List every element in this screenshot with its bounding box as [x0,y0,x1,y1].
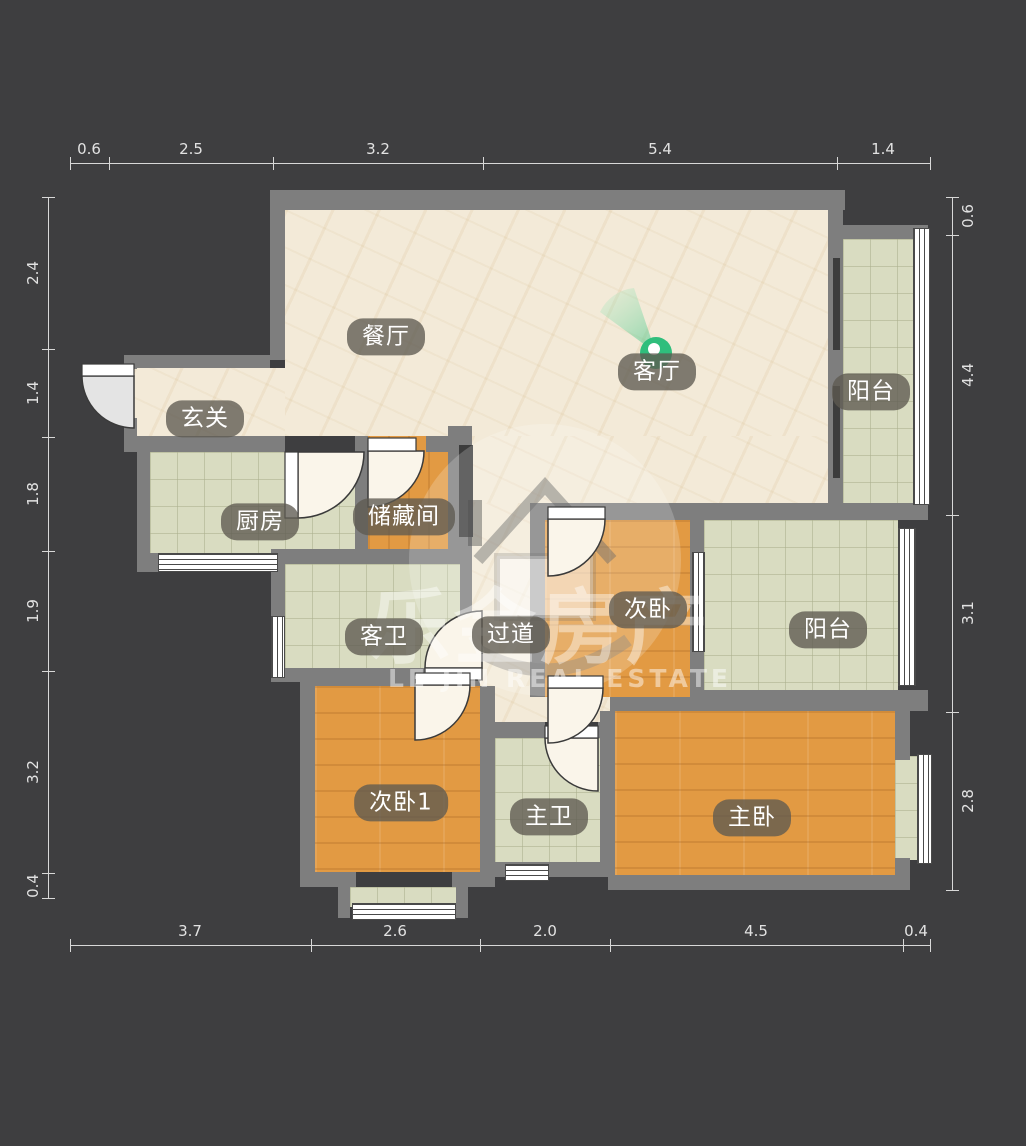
window-master-bay [917,754,932,864]
dimension-value-bottom: 2.6 [383,922,407,940]
dimension-value-left: 2.4 [24,261,42,285]
dimension-value-top: 2.5 [179,140,203,158]
floor-master-bay-window [895,756,917,860]
dimension-tick [946,235,959,236]
wall-kitchen-bottom-stub [137,553,158,572]
floor-plan-canvas: 乐金房产 LE JIN REAL ESTATE 餐厅 客厅 玄关 厨房 储藏间 … [0,0,1026,1146]
wall-entry-bottom [124,436,285,452]
dimension-tick [42,873,55,874]
dimension-tick [610,939,611,952]
wall-bedroom21-bottom-left [300,872,356,887]
room-label-bedroom2-1: 次卧1 [354,784,448,821]
wall-bedroom21-bottom-right [452,872,495,887]
dimension-value-right: 2.8 [959,789,977,813]
floor-bedroom2-1 [315,686,480,872]
dimension-value-top: 5.4 [648,140,672,158]
dimension-tick [837,157,838,170]
room-label-storage: 储藏间 [353,498,455,535]
dimension-value-right: 4.4 [959,363,977,387]
wall-kitchen-left [137,452,150,553]
floor-balcony-right [704,520,898,690]
dimension-line-top [70,163,930,164]
wall-top [271,190,845,210]
room-label-entryway: 玄关 [166,400,244,437]
dimension-tick [946,890,959,891]
floor-living-lower [472,436,828,503]
wall-entry-top [137,355,270,368]
wall-bedroom21-masterbath [480,686,495,876]
window-guest-bath [271,616,285,678]
dimension-value-top: 3.2 [366,140,390,158]
dimension-tick [946,515,959,516]
floor-master-bedroom [615,711,895,875]
window-master-bath [505,864,549,881]
window-balcony-top [913,228,930,505]
dimension-tick [311,939,312,952]
dimension-tick [42,671,55,672]
room-label-living: 客厅 [618,353,696,390]
dimension-tick [273,157,274,170]
wall-bay-side-right [456,887,468,918]
room-label-balcony-right: 阳台 [789,611,867,648]
dimension-value-bottom: 2.0 [533,922,557,940]
dimension-tick [903,939,904,952]
dimension-line-bottom [70,945,930,946]
dimension-tick [930,939,931,952]
dimension-value-left: 3.2 [24,760,42,784]
window-bedroom21-bay [352,903,456,920]
room-label-hallway: 过道 [472,616,550,653]
room-label-bedroom2: 次卧 [609,591,687,628]
wall-bedroom2-bottom [610,697,710,711]
wall-kitchen-storage-post [355,436,368,452]
dimension-tick [70,157,71,170]
dimension-value-left: 0.4 [24,874,42,898]
dimension-value-bottom: 4.5 [744,922,768,940]
sliding-panel-storage-hall [459,445,473,537]
dimension-value-right: 0.6 [959,204,977,228]
dimension-value-left: 1.9 [24,599,42,623]
room-label-guest-bath: 客卫 [345,618,423,655]
dimension-tick [946,712,959,713]
dimension-tick [42,898,55,899]
wall-dining-left [270,190,285,360]
dimension-value-left: 1.4 [24,381,42,405]
dimension-tick [42,551,55,552]
dimension-tick [42,197,55,198]
dimension-line-left [48,197,49,898]
sliding-door-living-balcony-upper [833,258,840,350]
room-label-balcony-top: 阳台 [832,373,910,410]
window-kitchen [158,553,278,572]
dimension-tick [946,197,959,198]
dimension-value-bottom: 0.4 [904,922,928,940]
wall-entry-left-stub-top [124,355,137,369]
dimension-tick [930,157,931,170]
room-label-master-bath: 主卫 [510,798,588,835]
wall-bay-side-left [338,887,350,918]
dimension-value-left: 1.8 [24,482,42,506]
wall-master-bottom [608,875,910,890]
floor-balcony-top [843,239,913,503]
dimension-tick [483,157,484,170]
dimension-tick [70,939,71,952]
dimension-value-top: 1.4 [871,140,895,158]
dimension-line-right [952,197,953,890]
dimension-tick [480,939,481,952]
room-label-dining: 餐厅 [347,318,425,355]
dimension-value-bottom: 3.7 [178,922,202,940]
wall-master-right-top [895,705,910,760]
dimension-tick [109,157,110,170]
dimension-tick [42,349,55,350]
room-label-master-bedroom: 主卧 [713,799,791,836]
dimension-tick [42,437,55,438]
wall-mid-horizontal [530,503,928,520]
wall-masterbath-top-right [598,722,615,738]
wall-bedroom21-left [300,672,315,887]
watermark-text-en: LE JIN REAL ESTATE [388,664,732,693]
room-label-kitchen: 厨房 [221,503,299,540]
dimension-value-right: 3.1 [959,601,977,625]
window-balcony-right [898,528,916,686]
dimension-value-top: 0.6 [77,140,101,158]
wall-guestbath-top [271,549,472,564]
